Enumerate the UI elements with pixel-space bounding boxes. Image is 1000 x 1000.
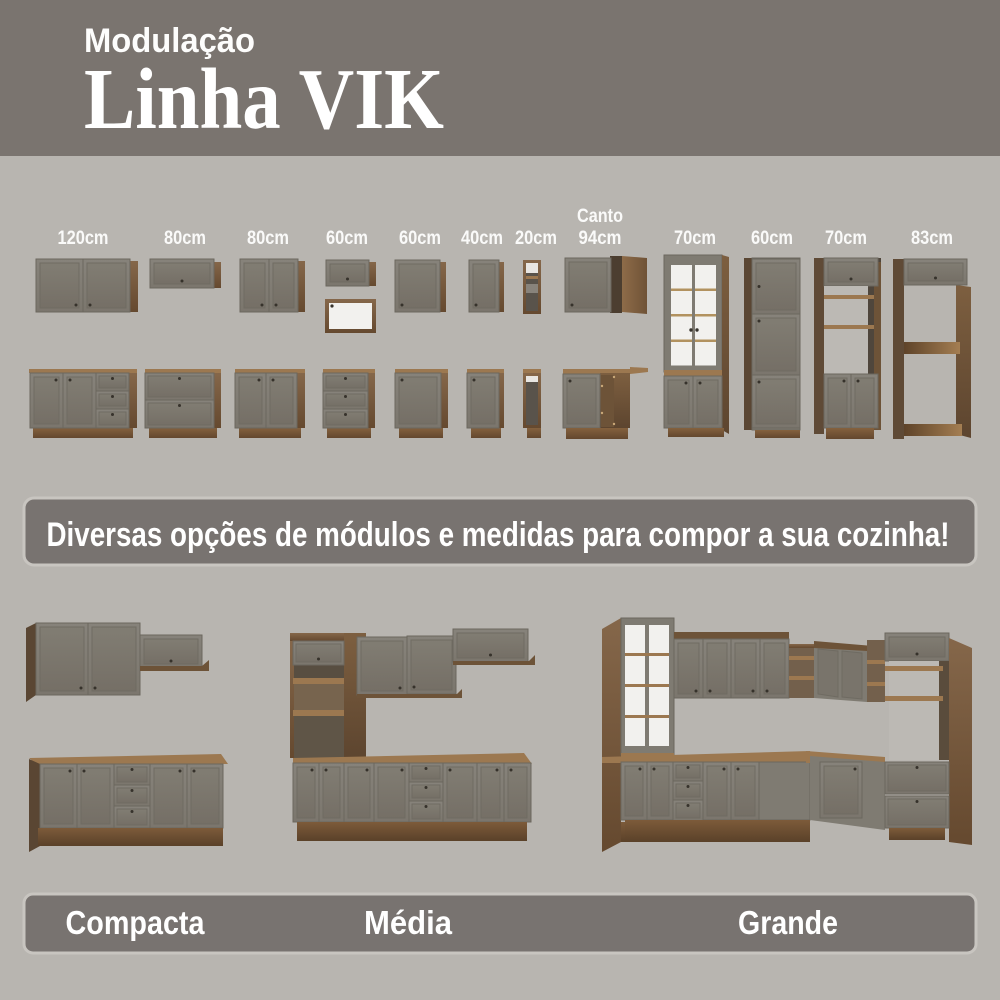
svg-text:Canto: Canto: [577, 206, 623, 227]
svg-text:Diversas opções de módulos e m: Diversas opções de módulos e medidas par…: [47, 516, 950, 554]
svg-text:80cm: 80cm: [247, 228, 289, 249]
svg-text:80cm: 80cm: [164, 228, 206, 249]
svg-text:Grande: Grande: [738, 904, 838, 941]
svg-text:20cm: 20cm: [515, 228, 557, 249]
svg-text:40cm: 40cm: [461, 228, 503, 249]
svg-text:83cm: 83cm: [911, 228, 953, 249]
svg-text:70cm: 70cm: [674, 228, 716, 249]
svg-text:70cm: 70cm: [825, 228, 867, 249]
svg-text:60cm: 60cm: [751, 228, 793, 249]
svg-text:60cm: 60cm: [399, 228, 441, 249]
svg-text:60cm: 60cm: [326, 228, 368, 249]
svg-text:Média: Média: [364, 904, 453, 941]
svg-text:Linha VIK: Linha VIK: [84, 50, 444, 147]
svg-text:94cm: 94cm: [579, 228, 622, 249]
svg-text:Compacta: Compacta: [66, 904, 206, 941]
svg-text:120cm: 120cm: [58, 228, 109, 249]
